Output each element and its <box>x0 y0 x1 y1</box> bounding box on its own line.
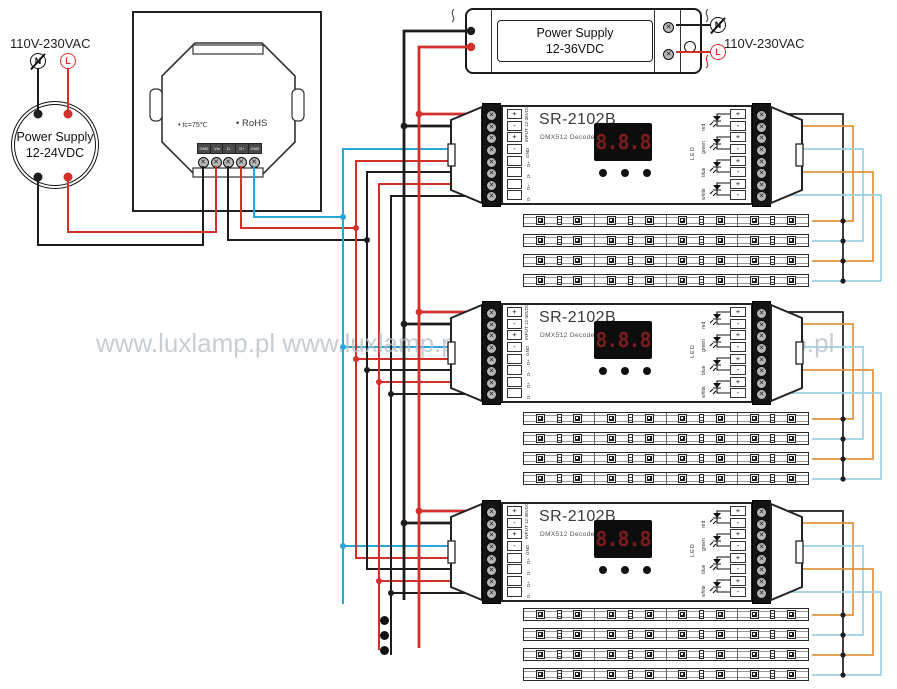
resistor <box>628 474 633 483</box>
led-chip <box>573 276 582 285</box>
led-chip <box>573 474 582 483</box>
input-symbol-plus: + <box>507 506 522 516</box>
led-die <box>789 672 794 677</box>
led-chip <box>787 276 796 285</box>
output-minus: - <box>730 564 746 574</box>
led-chip <box>645 256 654 265</box>
resistor <box>557 610 562 619</box>
led-die <box>538 436 543 441</box>
strip-segment <box>667 629 738 640</box>
strip-segment <box>595 629 666 640</box>
led-die <box>647 632 652 637</box>
resistor <box>557 216 562 225</box>
led-die <box>538 612 543 617</box>
continuation-dot <box>380 631 389 640</box>
screw-terminal: ✕ <box>486 133 497 144</box>
strip-segment <box>667 255 738 266</box>
strip-segment <box>738 629 808 640</box>
strip-segment <box>667 433 738 444</box>
led-die <box>680 456 685 461</box>
led-chip <box>716 630 725 639</box>
strip-segment <box>595 413 666 424</box>
resistor <box>557 670 562 679</box>
neutral-terminal-left: N <box>30 53 46 69</box>
input-symbol-minus: - <box>507 541 522 551</box>
led-die <box>538 672 543 677</box>
resistor <box>699 256 704 265</box>
input-screw-block: ✕✕✕✕✕✕✕✕ <box>482 500 501 604</box>
led-chip <box>716 276 725 285</box>
decoder-type: DMX512 Decoder <box>540 134 597 141</box>
resistor <box>770 236 775 245</box>
led-strip <box>523 254 809 267</box>
output-minus: - <box>730 144 746 154</box>
input-symbol-plus: + <box>507 529 522 539</box>
led-chip <box>750 610 759 619</box>
screw-terminal: ✕ <box>486 542 497 553</box>
up-button[interactable] <box>621 566 629 574</box>
dmx-terminal-box <box>507 587 522 597</box>
led-chip <box>787 236 796 245</box>
led-die <box>752 612 757 617</box>
dmx-label: D+ <box>527 354 532 365</box>
led-die <box>680 416 685 421</box>
resistor <box>557 650 562 659</box>
screw-terminal: ✕ <box>486 577 497 588</box>
strip-segment <box>524 215 595 226</box>
led-die <box>680 218 685 223</box>
screw-terminal: ✕ <box>486 378 497 389</box>
neutral-terminal-right: N <box>710 17 726 33</box>
led-chip <box>716 454 725 463</box>
led-die <box>609 456 614 461</box>
strip-segment <box>667 235 738 246</box>
resistor <box>699 236 704 245</box>
resistor <box>628 276 633 285</box>
led-chip <box>678 630 687 639</box>
led-die <box>538 416 543 421</box>
led-die <box>680 278 685 283</box>
screw-terminal: ✕ <box>486 168 497 179</box>
dmx-label: D- <box>527 190 532 201</box>
output-plus: + <box>730 156 746 166</box>
resistor <box>628 216 633 225</box>
menu-button[interactable] <box>599 367 607 375</box>
resistor <box>770 610 775 619</box>
mains-voltage-label-right: 110V-230VAC <box>724 36 804 51</box>
led-die <box>647 436 652 441</box>
rohs-marking: • RoHS <box>236 118 267 129</box>
led-die <box>789 612 794 617</box>
led-strip <box>523 214 809 227</box>
resistor <box>557 256 562 265</box>
power-supply-top-label: Power Supply 12-36VDC <box>497 20 653 62</box>
led-group-label: LED <box>691 140 697 160</box>
led-chip <box>716 256 725 265</box>
led-die <box>752 218 757 223</box>
led-chip <box>678 650 687 659</box>
led-chip <box>716 610 725 619</box>
led-die <box>789 436 794 441</box>
led-chip <box>750 650 759 659</box>
psu-round-line1: Power Supply <box>16 129 93 145</box>
led-die <box>647 612 652 617</box>
led-chip <box>573 630 582 639</box>
led-strip <box>523 452 809 465</box>
led-chip <box>607 474 616 483</box>
led-die <box>718 278 723 283</box>
dmx-label: D+ <box>527 156 532 167</box>
seven-segment-display: 8.8.8 <box>594 520 652 558</box>
strip-segment <box>738 215 808 226</box>
screw-terminal: ✕ <box>249 157 260 168</box>
output-plus: + <box>730 307 746 317</box>
strip-segment <box>595 255 666 266</box>
led-strip <box>523 412 809 425</box>
live-terminal-left: L <box>60 53 76 69</box>
led-die <box>680 612 685 617</box>
led-chip <box>645 414 654 423</box>
led-chip <box>787 610 796 619</box>
resistor <box>557 434 562 443</box>
screw-terminal: ✕ <box>486 145 497 156</box>
led-chip <box>607 414 616 423</box>
led-die <box>752 258 757 263</box>
output-plus: + <box>730 132 746 142</box>
ac-screw-l: ✕ <box>663 49 674 60</box>
resistor <box>699 474 704 483</box>
led-chip <box>645 610 654 619</box>
led-chip <box>716 414 725 423</box>
strip-segment <box>595 235 666 246</box>
led-chip <box>716 236 725 245</box>
screw-terminal: ✕ <box>486 180 497 191</box>
led-chip <box>750 474 759 483</box>
strip-segment <box>738 609 808 620</box>
led-die <box>575 652 580 657</box>
resistor <box>628 670 633 679</box>
led-group-label: LED <box>691 338 697 358</box>
dmx-terminal-box <box>507 576 522 586</box>
ac-screw-n: ✕ <box>663 22 674 33</box>
led-chip <box>787 474 796 483</box>
led-chip <box>607 276 616 285</box>
led-die <box>718 632 723 637</box>
led-chip <box>645 474 654 483</box>
output-minus: - <box>730 365 746 375</box>
led-chip <box>573 610 582 619</box>
screw-terminal: ✕ <box>223 157 234 168</box>
led-chip <box>787 650 796 659</box>
led-die <box>647 456 652 461</box>
input-symbol-minus: - <box>507 144 522 154</box>
screw-terminal: ✕ <box>486 588 497 599</box>
strip-segment <box>595 669 666 680</box>
led-chip <box>607 610 616 619</box>
dmx-terminal-box <box>507 377 522 387</box>
led-die <box>647 416 652 421</box>
led-chip <box>787 256 796 265</box>
led-die <box>718 258 723 263</box>
led-die <box>789 218 794 223</box>
strip-segment <box>524 453 595 464</box>
led-chip <box>716 216 725 225</box>
output-minus: - <box>730 518 746 528</box>
led-chip <box>678 236 687 245</box>
output-minus: - <box>730 319 746 329</box>
led-chip <box>536 650 545 659</box>
led-die <box>538 258 543 263</box>
resistor <box>557 630 562 639</box>
led-die <box>609 218 614 223</box>
dmx-label: D- <box>527 167 532 178</box>
led-chip <box>750 216 759 225</box>
led-die <box>718 456 723 461</box>
seven-segment-display: 8.8.8 <box>594 321 652 359</box>
menu-button[interactable] <box>599 566 607 574</box>
led-chip <box>573 236 582 245</box>
led-die <box>752 278 757 283</box>
resistor <box>699 650 704 659</box>
led-chip <box>678 216 687 225</box>
down-button[interactable] <box>643 169 651 177</box>
resistor <box>770 216 775 225</box>
strip-segment <box>595 649 666 660</box>
output-minus: - <box>730 167 746 177</box>
resistor <box>628 650 633 659</box>
resistor <box>770 630 775 639</box>
screw-terminal: ✕ <box>486 320 497 331</box>
dmx-terminal-box <box>507 365 522 375</box>
dmx-decoder: ✕✕✕✕✕✕✕✕ + - + - INPUT 12-36VDC GND D+ D… <box>447 298 805 408</box>
led-die <box>575 672 580 677</box>
down-button[interactable] <box>643 566 651 574</box>
resistor <box>699 630 704 639</box>
led-die <box>575 456 580 461</box>
screw-terminal: ✕ <box>486 191 497 202</box>
led-chip <box>607 650 616 659</box>
output-plus: + <box>730 506 746 516</box>
strip-segment <box>667 649 738 660</box>
led-die <box>609 672 614 677</box>
screw-terminal: ✕ <box>486 122 497 133</box>
led-die <box>752 436 757 441</box>
led-chip <box>750 630 759 639</box>
led-strip-set <box>523 214 810 290</box>
led-chip <box>536 236 545 245</box>
led-strip <box>523 608 809 621</box>
resistor <box>628 630 633 639</box>
strip-segment <box>524 235 595 246</box>
led-die <box>575 278 580 283</box>
led-chip <box>716 650 725 659</box>
led-die <box>575 238 580 243</box>
led-chip <box>750 454 759 463</box>
led-chip <box>645 670 654 679</box>
led-chip <box>536 414 545 423</box>
output-plus: + <box>730 576 746 586</box>
dmx-terminal-box <box>507 190 522 200</box>
led-chip <box>645 236 654 245</box>
resistor <box>628 236 633 245</box>
led-strip <box>523 668 809 681</box>
led-chip <box>750 414 759 423</box>
input-symbol-plus: + <box>507 132 522 142</box>
led-die <box>575 436 580 441</box>
resistor <box>557 414 562 423</box>
led-chip <box>750 256 759 265</box>
led-die <box>718 218 723 223</box>
led-die <box>609 612 614 617</box>
led-die <box>647 672 652 677</box>
led-die <box>680 652 685 657</box>
down-button[interactable] <box>643 367 651 375</box>
psu-divider-3 <box>680 10 681 72</box>
menu-button[interactable] <box>599 169 607 177</box>
resistor <box>699 434 704 443</box>
led-chip <box>787 454 796 463</box>
strip-segment <box>738 649 808 660</box>
screw-terminal: ✕ <box>486 343 497 354</box>
strip-segment <box>738 275 808 286</box>
dmx-label: D+ <box>527 179 532 190</box>
led-chip <box>536 454 545 463</box>
input-symbol-plus: + <box>507 307 522 317</box>
output-plus: + <box>730 553 746 563</box>
led-die <box>680 632 685 637</box>
led-die <box>718 612 723 617</box>
led-strip <box>523 648 809 661</box>
up-button[interactable] <box>621 367 629 375</box>
led-chip <box>607 434 616 443</box>
led-chip <box>573 434 582 443</box>
led-chip <box>750 276 759 285</box>
led-die <box>609 238 614 243</box>
led-chip <box>607 236 616 245</box>
dmx-terminal-box <box>507 179 522 189</box>
strip-segment <box>524 629 595 640</box>
dmx-label: D- <box>527 365 532 376</box>
led-chip <box>573 650 582 659</box>
dmx-label: D+ <box>527 576 532 587</box>
led-die <box>575 476 580 481</box>
dmx-label: D- <box>527 564 532 575</box>
led-die <box>718 436 723 441</box>
strip-segment <box>667 473 738 484</box>
screw-terminal: ✕ <box>198 157 209 168</box>
psu-top-line2: 12-36VDC <box>546 41 604 57</box>
resistor <box>770 474 775 483</box>
led-chip <box>645 454 654 463</box>
output-minus: - <box>730 190 746 200</box>
led-die <box>647 218 652 223</box>
output-plus: + <box>730 179 746 189</box>
led-chip <box>750 670 759 679</box>
mounting-hole <box>684 41 696 53</box>
led-die <box>752 476 757 481</box>
up-button[interactable] <box>621 169 629 177</box>
led-chip <box>716 474 725 483</box>
power-supply-round-label: Power Supply 12-24VDC <box>16 129 93 162</box>
led-strip <box>523 472 809 485</box>
psu-divider-1 <box>491 10 492 72</box>
resistor <box>770 434 775 443</box>
dmx-label: D- <box>527 388 532 399</box>
screw-terminal: ✕ <box>486 366 497 377</box>
strip-segment <box>595 215 666 226</box>
led-chip <box>607 630 616 639</box>
led-chip <box>716 670 725 679</box>
screw-terminal: ✕ <box>211 157 222 168</box>
led-die <box>575 612 580 617</box>
resistor <box>770 276 775 285</box>
led-chip <box>787 434 796 443</box>
input-symbol-minus: - <box>507 518 522 528</box>
screw-terminal: ✕ <box>486 331 497 342</box>
resistor <box>699 414 704 423</box>
led-die <box>609 632 614 637</box>
led-chip <box>750 434 759 443</box>
dmx-label: D+ <box>527 553 532 564</box>
led-die <box>575 416 580 421</box>
led-chip <box>573 216 582 225</box>
led-die <box>609 436 614 441</box>
dmx-terminal-box <box>507 564 522 574</box>
power-supply-round: Power Supply 12-24VDC <box>11 101 99 189</box>
led-chip <box>678 454 687 463</box>
led-chip <box>645 216 654 225</box>
led-die <box>789 278 794 283</box>
led-die <box>609 476 614 481</box>
led-die <box>609 278 614 283</box>
led-die <box>752 652 757 657</box>
resistor <box>557 236 562 245</box>
terminal-label-gnd2: GND <box>248 143 262 154</box>
output-plus: + <box>730 109 746 119</box>
terminal-label-dminus: D- <box>222 143 236 154</box>
dmx-terminal-box <box>507 553 522 563</box>
led-strip <box>523 274 809 287</box>
strip-segment <box>524 609 595 620</box>
led-chip <box>645 276 654 285</box>
led-die <box>752 632 757 637</box>
screw-terminal: ✕ <box>486 355 497 366</box>
led-die <box>575 258 580 263</box>
input-symbol-minus: - <box>507 121 522 131</box>
led-chip <box>787 670 796 679</box>
screw-terminal: ✕ <box>486 530 497 541</box>
terminal-label-dplus: D+ <box>235 143 249 154</box>
led-chip <box>787 414 796 423</box>
led-die <box>789 632 794 637</box>
led-chip <box>536 256 545 265</box>
strip-segment <box>524 255 595 266</box>
led-strip <box>523 432 809 445</box>
led-chip <box>536 276 545 285</box>
strip-segment <box>524 433 595 444</box>
output-minus: - <box>730 541 746 551</box>
resistor <box>557 474 562 483</box>
led-chip <box>645 630 654 639</box>
strip-segment <box>738 473 808 484</box>
led-die <box>680 436 685 441</box>
strip-segment <box>595 453 666 464</box>
led-die <box>538 652 543 657</box>
strip-segment <box>667 669 738 680</box>
screw-terminal: ✕ <box>486 519 497 530</box>
resistor <box>557 276 562 285</box>
output-plus: + <box>730 330 746 340</box>
